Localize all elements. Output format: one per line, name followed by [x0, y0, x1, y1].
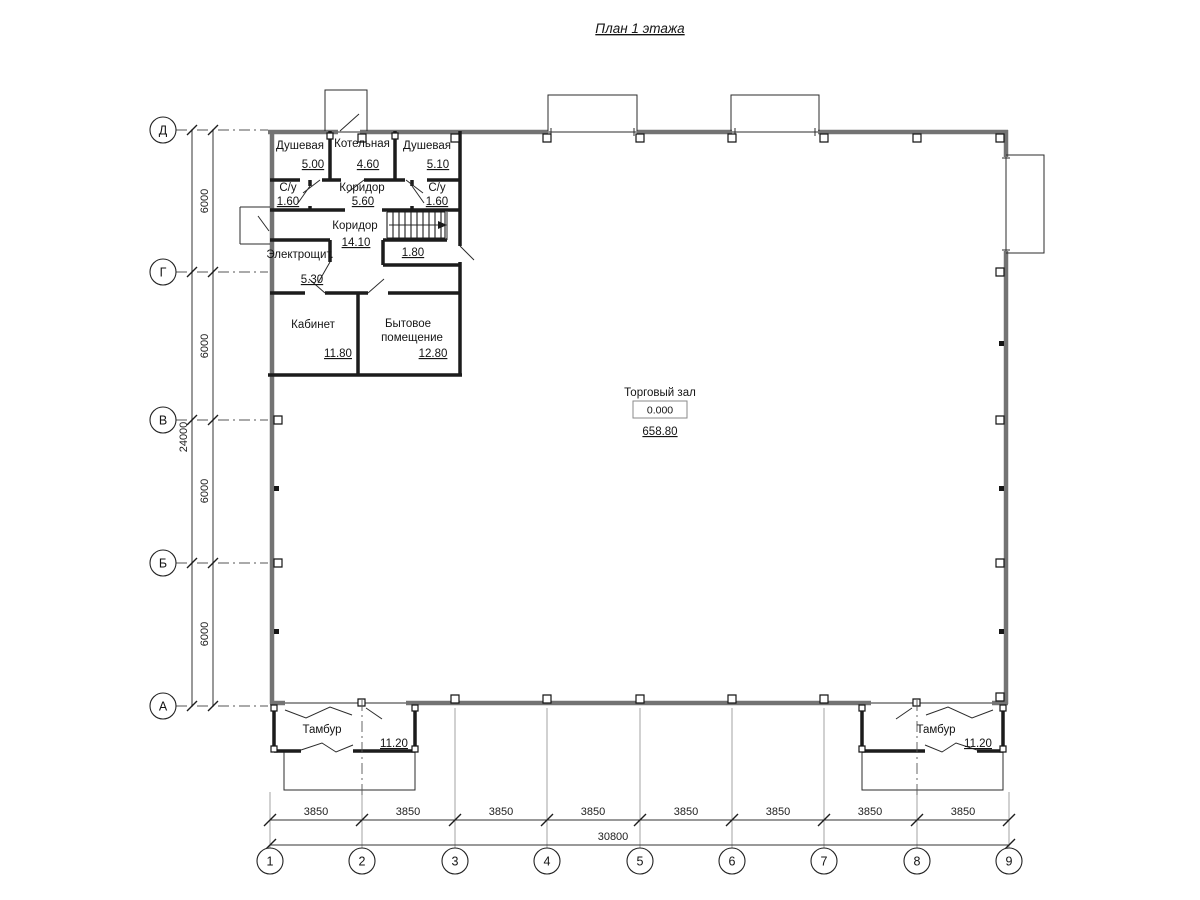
room-office: Кабинет: [291, 319, 335, 331]
column-markers: [271, 133, 1006, 752]
room-corridor-small: Коридор: [339, 182, 384, 194]
stair-direction-arrow: [438, 221, 447, 229]
col-axis-label: 7: [821, 855, 828, 869]
col-axis-label: 9: [1006, 855, 1013, 869]
column-axis-bubbles: 1 2 3 4 5 6 7 8 9: [257, 848, 1022, 874]
floor-plan-canvas: План 1 этажа: [0, 0, 1200, 900]
room-vestibule-left: Тамбур: [302, 724, 341, 736]
dim-3850: 3850: [766, 806, 790, 818]
area-stair-room: 1.80: [402, 247, 424, 259]
door-leaves: [258, 114, 993, 752]
room-electrical: Электрощит.: [266, 249, 333, 261]
dim-3850: 3850: [674, 806, 698, 818]
dim-3850: 3850: [489, 806, 513, 818]
row-axis-label: Б: [159, 557, 167, 571]
axis-grid-lines: [176, 130, 1009, 848]
room-shower-right: Душевая: [403, 140, 451, 152]
room-boiler: Котельная: [334, 138, 390, 150]
col-axis-label: 3: [452, 855, 459, 869]
area-office: 11.80: [324, 348, 352, 360]
room-vestibule-right: Тамбур: [916, 724, 955, 736]
area-wc-right: 1.60: [426, 196, 448, 208]
exterior-annexes: [240, 90, 1044, 790]
area-vestibule-left: 11.20: [380, 738, 408, 750]
drawing-title: План 1 этажа: [595, 21, 685, 36]
level-mark-value: 0.000: [647, 405, 673, 417]
col-axis-label: 5: [637, 855, 644, 869]
area-utility: 12.80: [419, 348, 448, 360]
area-electrical: 5.30: [301, 274, 323, 286]
area-shower-left: 5.00: [302, 159, 324, 171]
row-axis-label: Г: [160, 266, 167, 280]
dim-3850: 3850: [581, 806, 605, 818]
dim-3850: 3850: [951, 806, 975, 818]
staircase: [387, 212, 447, 240]
dim-6000: 6000: [199, 479, 211, 503]
col-axis-label: 8: [914, 855, 921, 869]
area-wc-left: 1.60: [277, 196, 299, 208]
dim-24000-total: 24000: [178, 422, 190, 453]
row-axis-bubbles: Д Г В Б А: [150, 117, 176, 719]
col-axis-label: 2: [359, 855, 366, 869]
room-corridor-main: Коридор: [332, 220, 377, 232]
interior-walls: [268, 131, 1003, 752]
area-vestibule-right: 11.20: [964, 738, 992, 750]
room-wc-right: С/у: [428, 182, 446, 194]
area-corridor-small: 5.60: [352, 196, 374, 208]
area-corridor-main: 14.10: [342, 237, 371, 249]
room-labels: Душевая 5.00 Котельная 4.60 Душевая 5.10…: [266, 138, 992, 750]
row-axis-label: А: [159, 700, 168, 714]
room-utility-line2: помещение: [381, 332, 443, 344]
dim-30800-total: 30800: [598, 831, 629, 843]
room-utility-line1: Бытовое: [385, 318, 431, 330]
dim-3850: 3850: [304, 806, 328, 818]
row-axis-label: В: [159, 414, 167, 428]
dim-6000: 6000: [199, 334, 211, 358]
dim-6000: 6000: [199, 189, 211, 213]
dimension-lines: [187, 125, 1015, 851]
row-axis-label: Д: [159, 124, 168, 138]
col-axis-label: 6: [729, 855, 736, 869]
col-axis-label: 4: [544, 855, 551, 869]
dim-3850: 3850: [396, 806, 420, 818]
area-shower-right: 5.10: [427, 159, 449, 171]
dim-3850: 3850: [858, 806, 882, 818]
area-hall: 658.80: [642, 426, 677, 438]
horizontal-dimensions: 3850 3850 3850 3850 3850 3850 3850 3850 …: [304, 806, 975, 843]
area-boiler: 4.60: [357, 159, 379, 171]
dim-6000: 6000: [199, 622, 211, 646]
floor-plan-page: План 1 этажа: [0, 0, 1200, 900]
col-axis-label: 1: [267, 855, 274, 869]
exterior-walls: [268, 128, 1010, 704]
room-hall: Торговый зал: [624, 387, 696, 399]
room-shower-left: Душевая: [276, 140, 324, 152]
room-wc-left: С/у: [279, 182, 297, 194]
